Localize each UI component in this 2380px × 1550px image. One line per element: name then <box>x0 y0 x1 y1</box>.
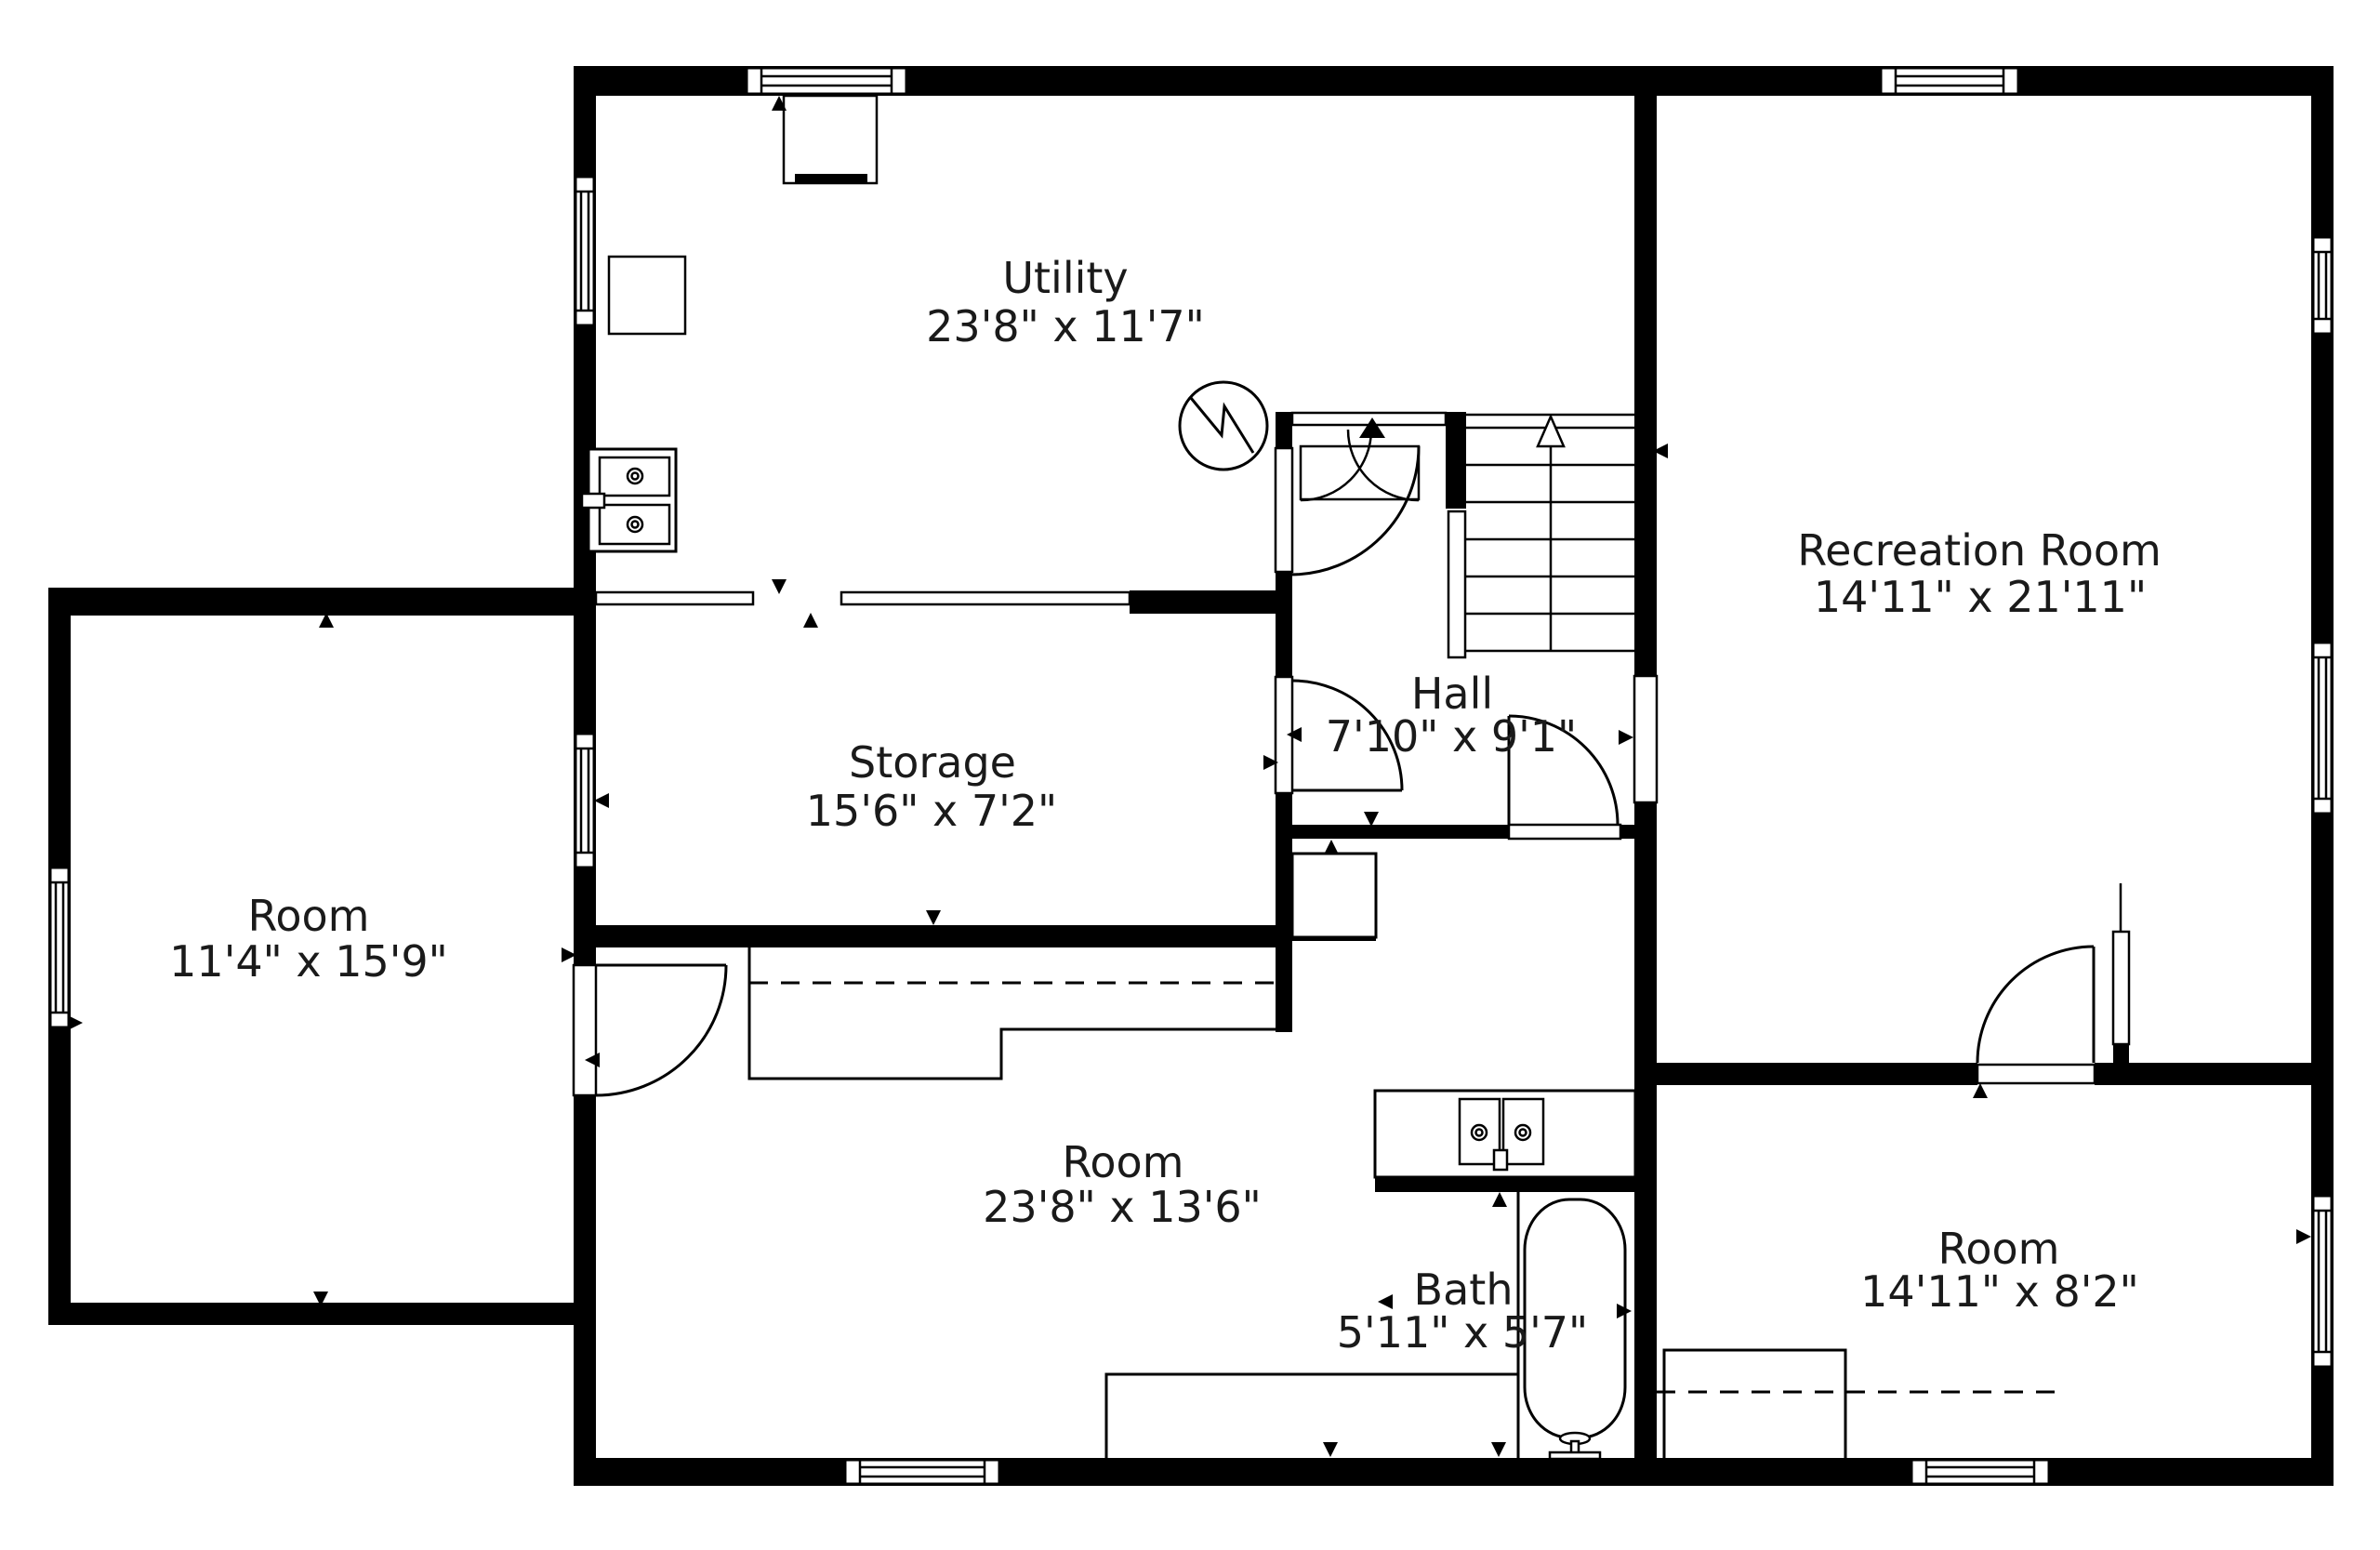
window-utility-top <box>747 68 906 94</box>
recreation-bottom-wall-left <box>1657 1063 1977 1085</box>
room-label-room-middle: Room <box>1063 1137 1184 1187</box>
wall-bottom <box>574 1458 2334 1486</box>
stair-side-wall <box>1446 412 1466 509</box>
opening-storage-top-left <box>596 592 753 604</box>
opening-hall-recreation <box>1634 676 1657 802</box>
arrow-down-icon <box>1323 1442 1338 1457</box>
room-dims-recreation: 14'11" x 21'11" <box>1814 572 2147 622</box>
door-annex <box>596 965 726 1095</box>
vanity-bath-wall <box>1375 1177 1635 1192</box>
hall-left-wall-c <box>1276 793 1292 1032</box>
window-bottom-room-right <box>1911 1460 2049 1484</box>
door-opening-recreation <box>1977 1065 2095 1083</box>
room-dims-bath: 5'11" x 5'7" <box>1337 1307 1588 1358</box>
window-utility-left <box>575 177 594 325</box>
stair-up-arrow-icon <box>1538 417 1564 446</box>
closet-room-middle <box>1106 1374 1518 1458</box>
room-label-room-left: Room <box>248 891 370 941</box>
opening-storage-top-right <box>841 592 1130 604</box>
electrical-panel-icon <box>1180 382 1267 470</box>
room-dims-hall: 7'10" x 9'1" <box>1326 711 1577 762</box>
floor-plan: Utility 23'8" x 11'7" Storage 15'6" x 7'… <box>0 0 2380 1550</box>
arrow-down-icon <box>1364 812 1379 827</box>
window-annex-left <box>50 868 69 1027</box>
window-recreation-right-lower <box>2313 643 2332 814</box>
freezer-icon <box>609 257 685 334</box>
closet-room-right <box>1664 1350 1845 1458</box>
stair-railing <box>1448 511 1465 657</box>
room-dims-room-middle: 23'8" x 13'6" <box>983 1182 1262 1232</box>
closet-below-storage <box>749 947 1290 1079</box>
arrow-up-icon <box>1492 1192 1507 1207</box>
arrow-right-icon <box>1619 730 1633 745</box>
door-opening-hall-bottom <box>1509 825 1620 839</box>
storage-top-wall <box>1130 590 1292 614</box>
storage-bottom-wall <box>596 925 1290 947</box>
window-storage-left <box>575 734 594 868</box>
staircase <box>1448 415 1634 657</box>
recreation-bottom-wall-right <box>2095 1063 2311 1085</box>
closet-double-door-hall <box>1301 417 1419 500</box>
recreation-divider-upper <box>1634 96 1657 676</box>
laundry-sink-icon <box>582 449 676 551</box>
room-label-utility: Utility <box>1002 253 1128 303</box>
room-dims-room-right: 14'11" x 8'2" <box>1860 1266 2139 1317</box>
room-dims-utility: 23'8" x 11'7" <box>926 301 1205 351</box>
arrow-down-icon <box>1491 1442 1506 1457</box>
annex-wall-top <box>48 588 596 616</box>
recreation-divider-lower <box>1634 802 1657 1458</box>
vanity-double-sink-icon <box>1375 1091 1635 1177</box>
door-opening-annex <box>574 965 596 1095</box>
arrow-up-icon <box>803 613 818 628</box>
door-hall-upper <box>1290 446 1419 575</box>
room-dims-storage: 15'6" x 7'2" <box>806 786 1057 836</box>
hall-bottom-wall-block <box>1620 825 1634 839</box>
nook-cabinet <box>1292 854 1376 937</box>
arrow-up-icon <box>1973 1083 1988 1098</box>
window-room-right <box>2313 1196 2332 1367</box>
arrow-right-icon <box>68 1015 83 1030</box>
room-label-storage: Storage <box>849 737 1016 788</box>
window-recreation-right-upper <box>2313 237 2332 334</box>
window-bottom-room-middle <box>845 1460 999 1484</box>
room-label-recreation: Recreation Room <box>1797 525 2162 576</box>
room-labels: Utility 23'8" x 11'7" Storage 15'6" x 7'… <box>169 253 2162 1358</box>
arrow-up-icon <box>1324 840 1339 854</box>
annex-wall-bottom <box>48 1303 596 1325</box>
door-opening-hall-upper <box>1276 448 1292 572</box>
arrow-down-icon <box>926 910 941 925</box>
door-recreation <box>1977 947 2094 1063</box>
jamb-recreation-door <box>2113 883 2129 1044</box>
hall-left-wall-b <box>1276 572 1292 677</box>
arrow-down-icon <box>772 579 787 594</box>
arrow-left-icon <box>594 793 609 808</box>
window-recreation-top <box>1881 68 2018 94</box>
washer-icon <box>784 96 877 183</box>
arrow-right-icon <box>2296 1229 2311 1244</box>
hall-bottom-wall <box>1292 825 1509 839</box>
jamb-block <box>2113 1044 2129 1065</box>
hall-left-wall-a <box>1276 412 1292 448</box>
floor-plan-canvas: Utility 23'8" x 11'7" Storage 15'6" x 7'… <box>0 0 2380 1550</box>
room-dims-room-left: 11'4" x 15'9" <box>169 936 448 987</box>
